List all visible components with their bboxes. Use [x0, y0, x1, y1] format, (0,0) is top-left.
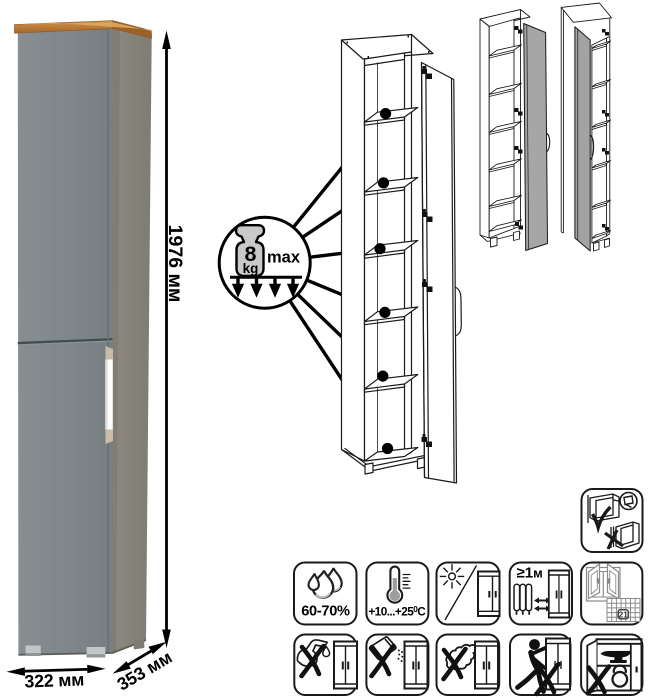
svg-text:60-70%: 60-70%	[301, 604, 350, 620]
svg-text:1976 мм: 1976 мм	[164, 225, 186, 303]
svg-text:322 мм: 322 мм	[24, 669, 84, 691]
svg-text:+10...+250С: +10...+250С	[368, 604, 426, 618]
svg-text:max: max	[267, 249, 301, 267]
svg-text:kg: kg	[243, 261, 259, 276]
svg-text:21: 21	[618, 609, 628, 619]
svg-text:≥1м: ≥1м	[517, 565, 543, 582]
